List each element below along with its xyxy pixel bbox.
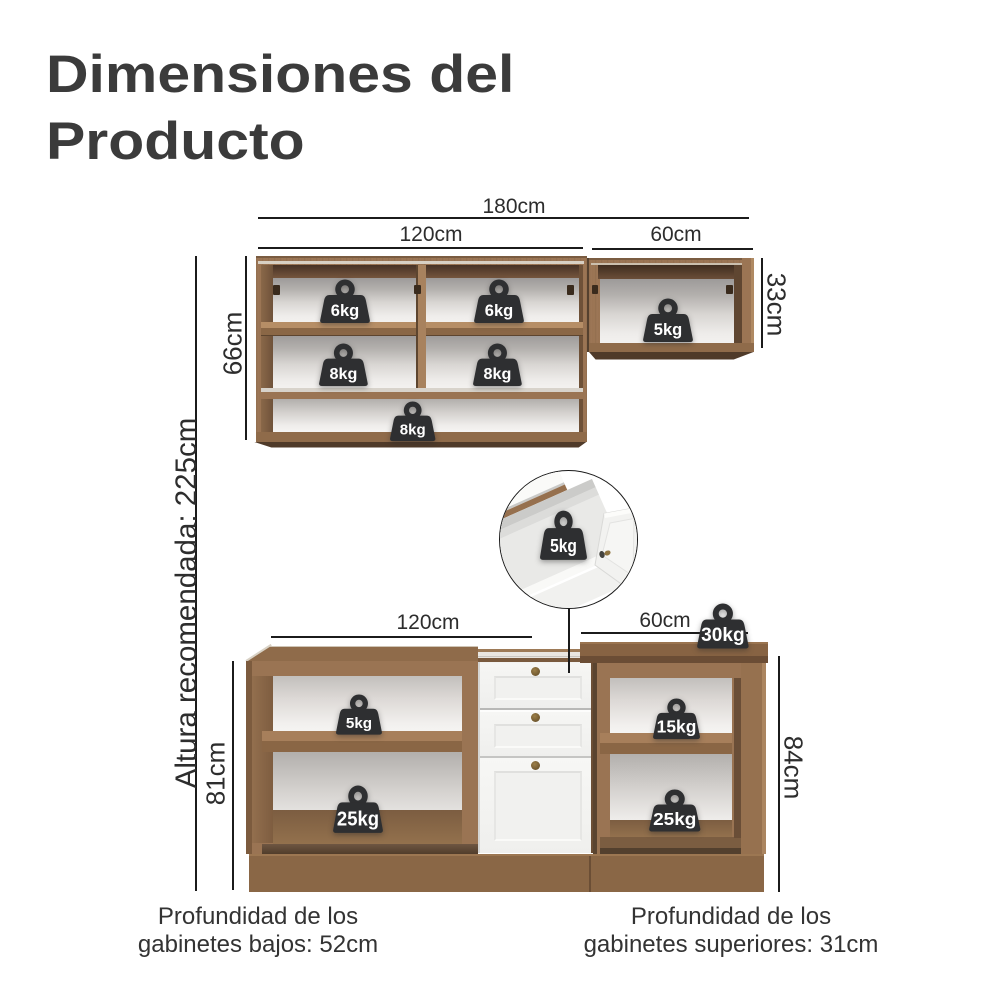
svg-text:8kg: 8kg [329, 365, 357, 383]
svg-text:6kg: 6kg [330, 302, 358, 320]
svg-text:25kg: 25kg [653, 808, 696, 828]
svg-text:5kg: 5kg [550, 535, 577, 557]
svg-text:15kg: 15kg [657, 716, 697, 736]
svg-text:5kg: 5kg [346, 715, 372, 732]
svg-text:30kg: 30kg [701, 625, 745, 646]
svg-text:25kg: 25kg [337, 809, 379, 831]
svg-text:8kg: 8kg [483, 365, 511, 383]
svg-text:5kg: 5kg [654, 321, 682, 339]
svg-text:8kg: 8kg [400, 421, 426, 438]
svg-text:6kg: 6kg [484, 302, 512, 320]
